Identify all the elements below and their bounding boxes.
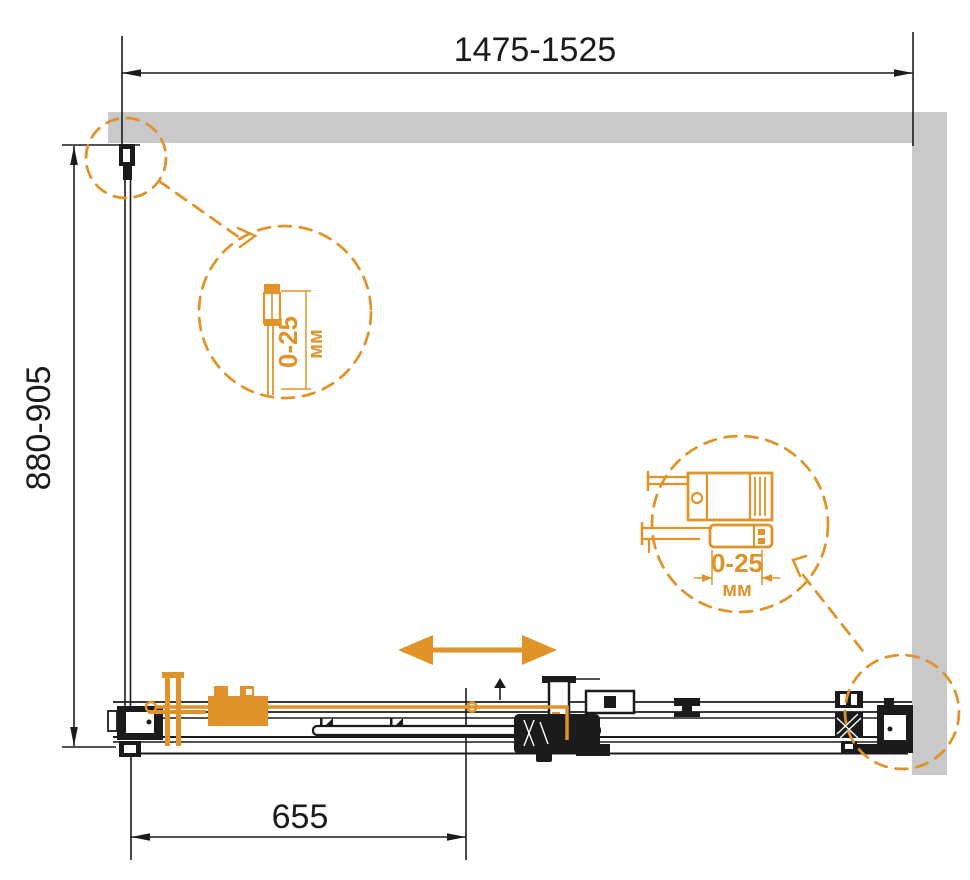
door-rail-detail-drawing: 0-25 мм	[642, 471, 780, 601]
dim-arrow-up	[70, 146, 78, 165]
door-rail-adjustment-unit: мм	[722, 579, 752, 601]
dim-arrow-down	[70, 727, 78, 746]
right-roller-assembly	[835, 691, 863, 753]
wall-profile-detail-drawing: 0-25 мм	[264, 284, 327, 395]
walls	[108, 112, 947, 775]
right-wall	[912, 112, 947, 775]
door-offset-label: 655	[272, 798, 329, 836]
slide-direction-arrow	[398, 635, 557, 665]
width-dimension-label: 1475-1525	[454, 31, 617, 69]
height-dimension-label: 880-905	[20, 366, 58, 491]
left-wall-profile	[119, 144, 135, 708]
dim-arrow-right	[447, 833, 466, 841]
wall-profile-adjustment-unit: мм	[305, 329, 327, 359]
dim-arrow-left	[122, 69, 141, 77]
callout-detail-circle	[199, 226, 371, 398]
dim-arrow-right	[894, 69, 913, 77]
top-wall	[108, 112, 947, 143]
wall-profile-adjustment-value: 0-25	[273, 316, 303, 368]
track-right-end-cap	[856, 698, 913, 754]
shower-enclosure-dimension-drawing: 1475-1525 880-905 655	[0, 0, 970, 880]
callout-arrowhead	[793, 556, 806, 576]
door-rail-adjustment-value: 0-25	[711, 548, 763, 578]
mid-clip-bracket	[674, 698, 700, 717]
height-dimension: 880-905	[20, 145, 140, 747]
center-carriage	[468, 676, 635, 762]
dim-arrow-left	[131, 833, 150, 841]
